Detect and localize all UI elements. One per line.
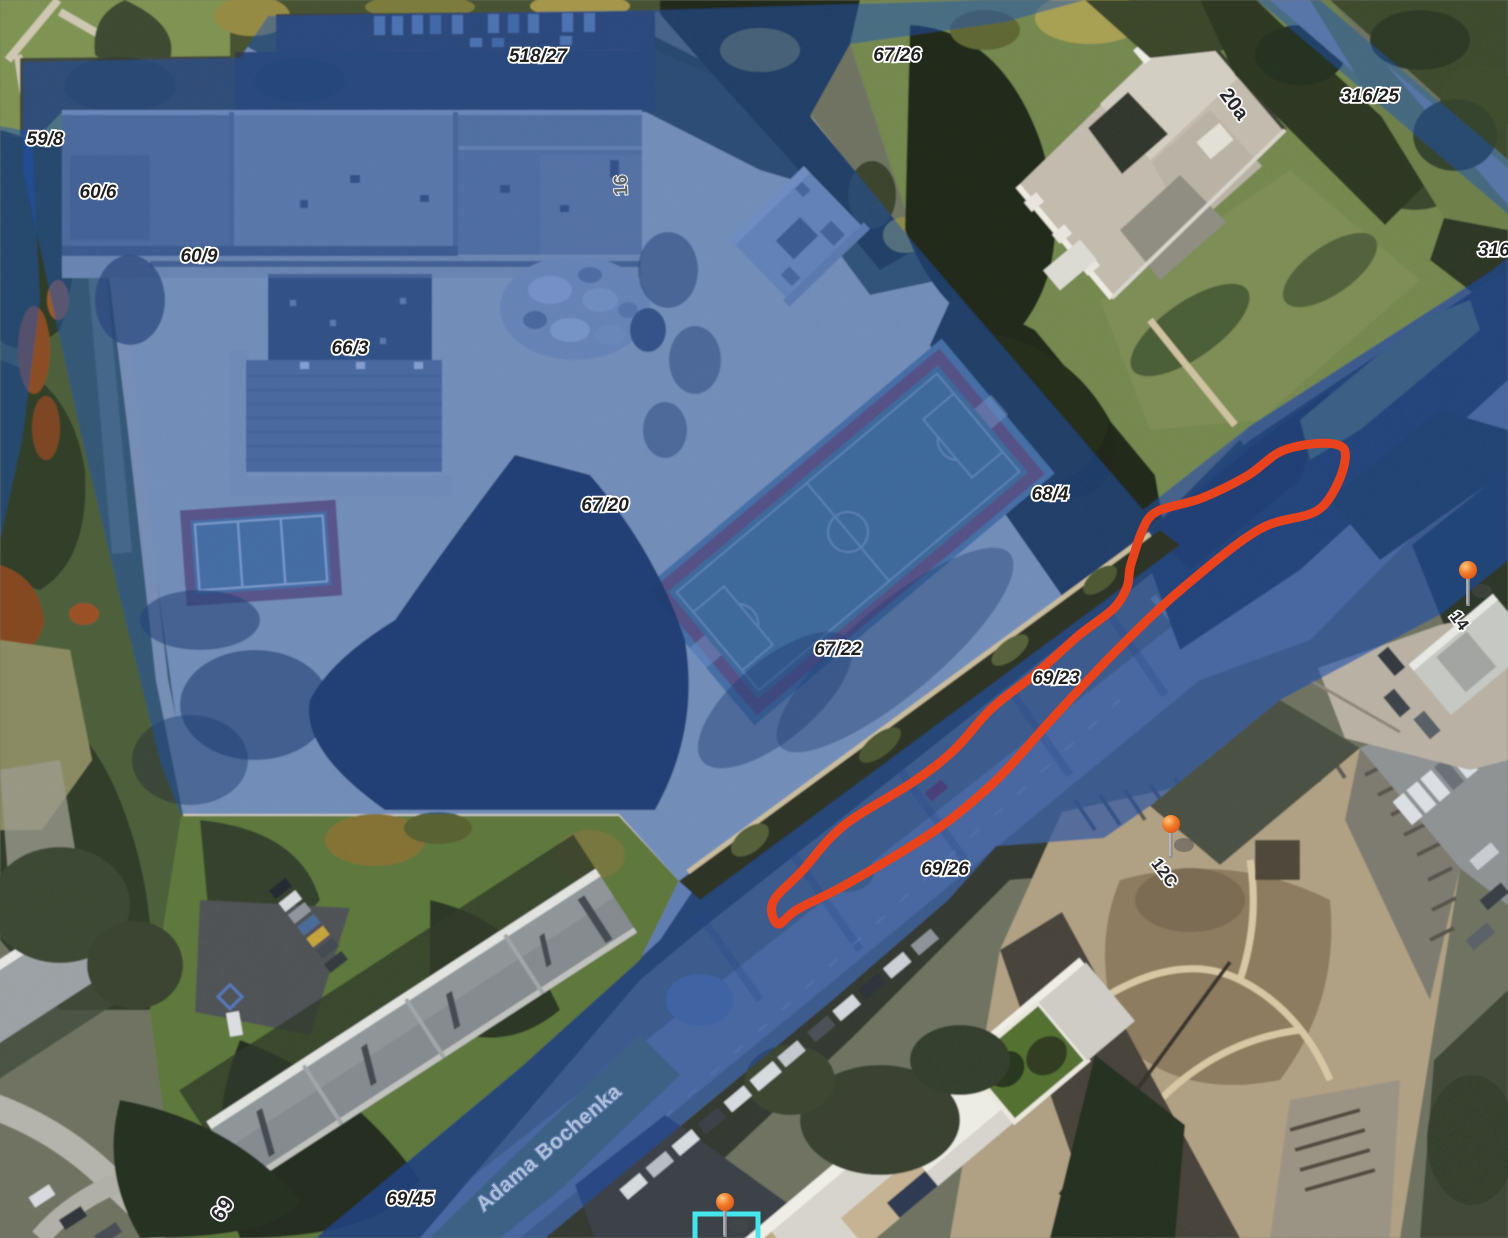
svg-text:69/45: 69/45 [386,1189,434,1210]
svg-text:16: 16 [610,174,632,196]
svg-text:316/25: 316/25 [1341,86,1400,107]
svg-text:59/8: 59/8 [27,129,64,150]
svg-text:67/26: 67/26 [873,45,921,66]
svg-text:518/27: 518/27 [509,46,569,67]
svg-text:67/20: 67/20 [581,495,629,516]
svg-text:69/23: 69/23 [1032,668,1080,689]
svg-text:68/4: 68/4 [1032,484,1069,505]
svg-text:60/6: 60/6 [80,182,117,203]
svg-text:66/3: 66/3 [332,338,369,359]
svg-text:69/26: 69/26 [921,859,969,880]
svg-text:67/22: 67/22 [814,639,862,660]
svg-text:60/9: 60/9 [181,246,218,267]
svg-text:316: 316 [1478,240,1508,261]
